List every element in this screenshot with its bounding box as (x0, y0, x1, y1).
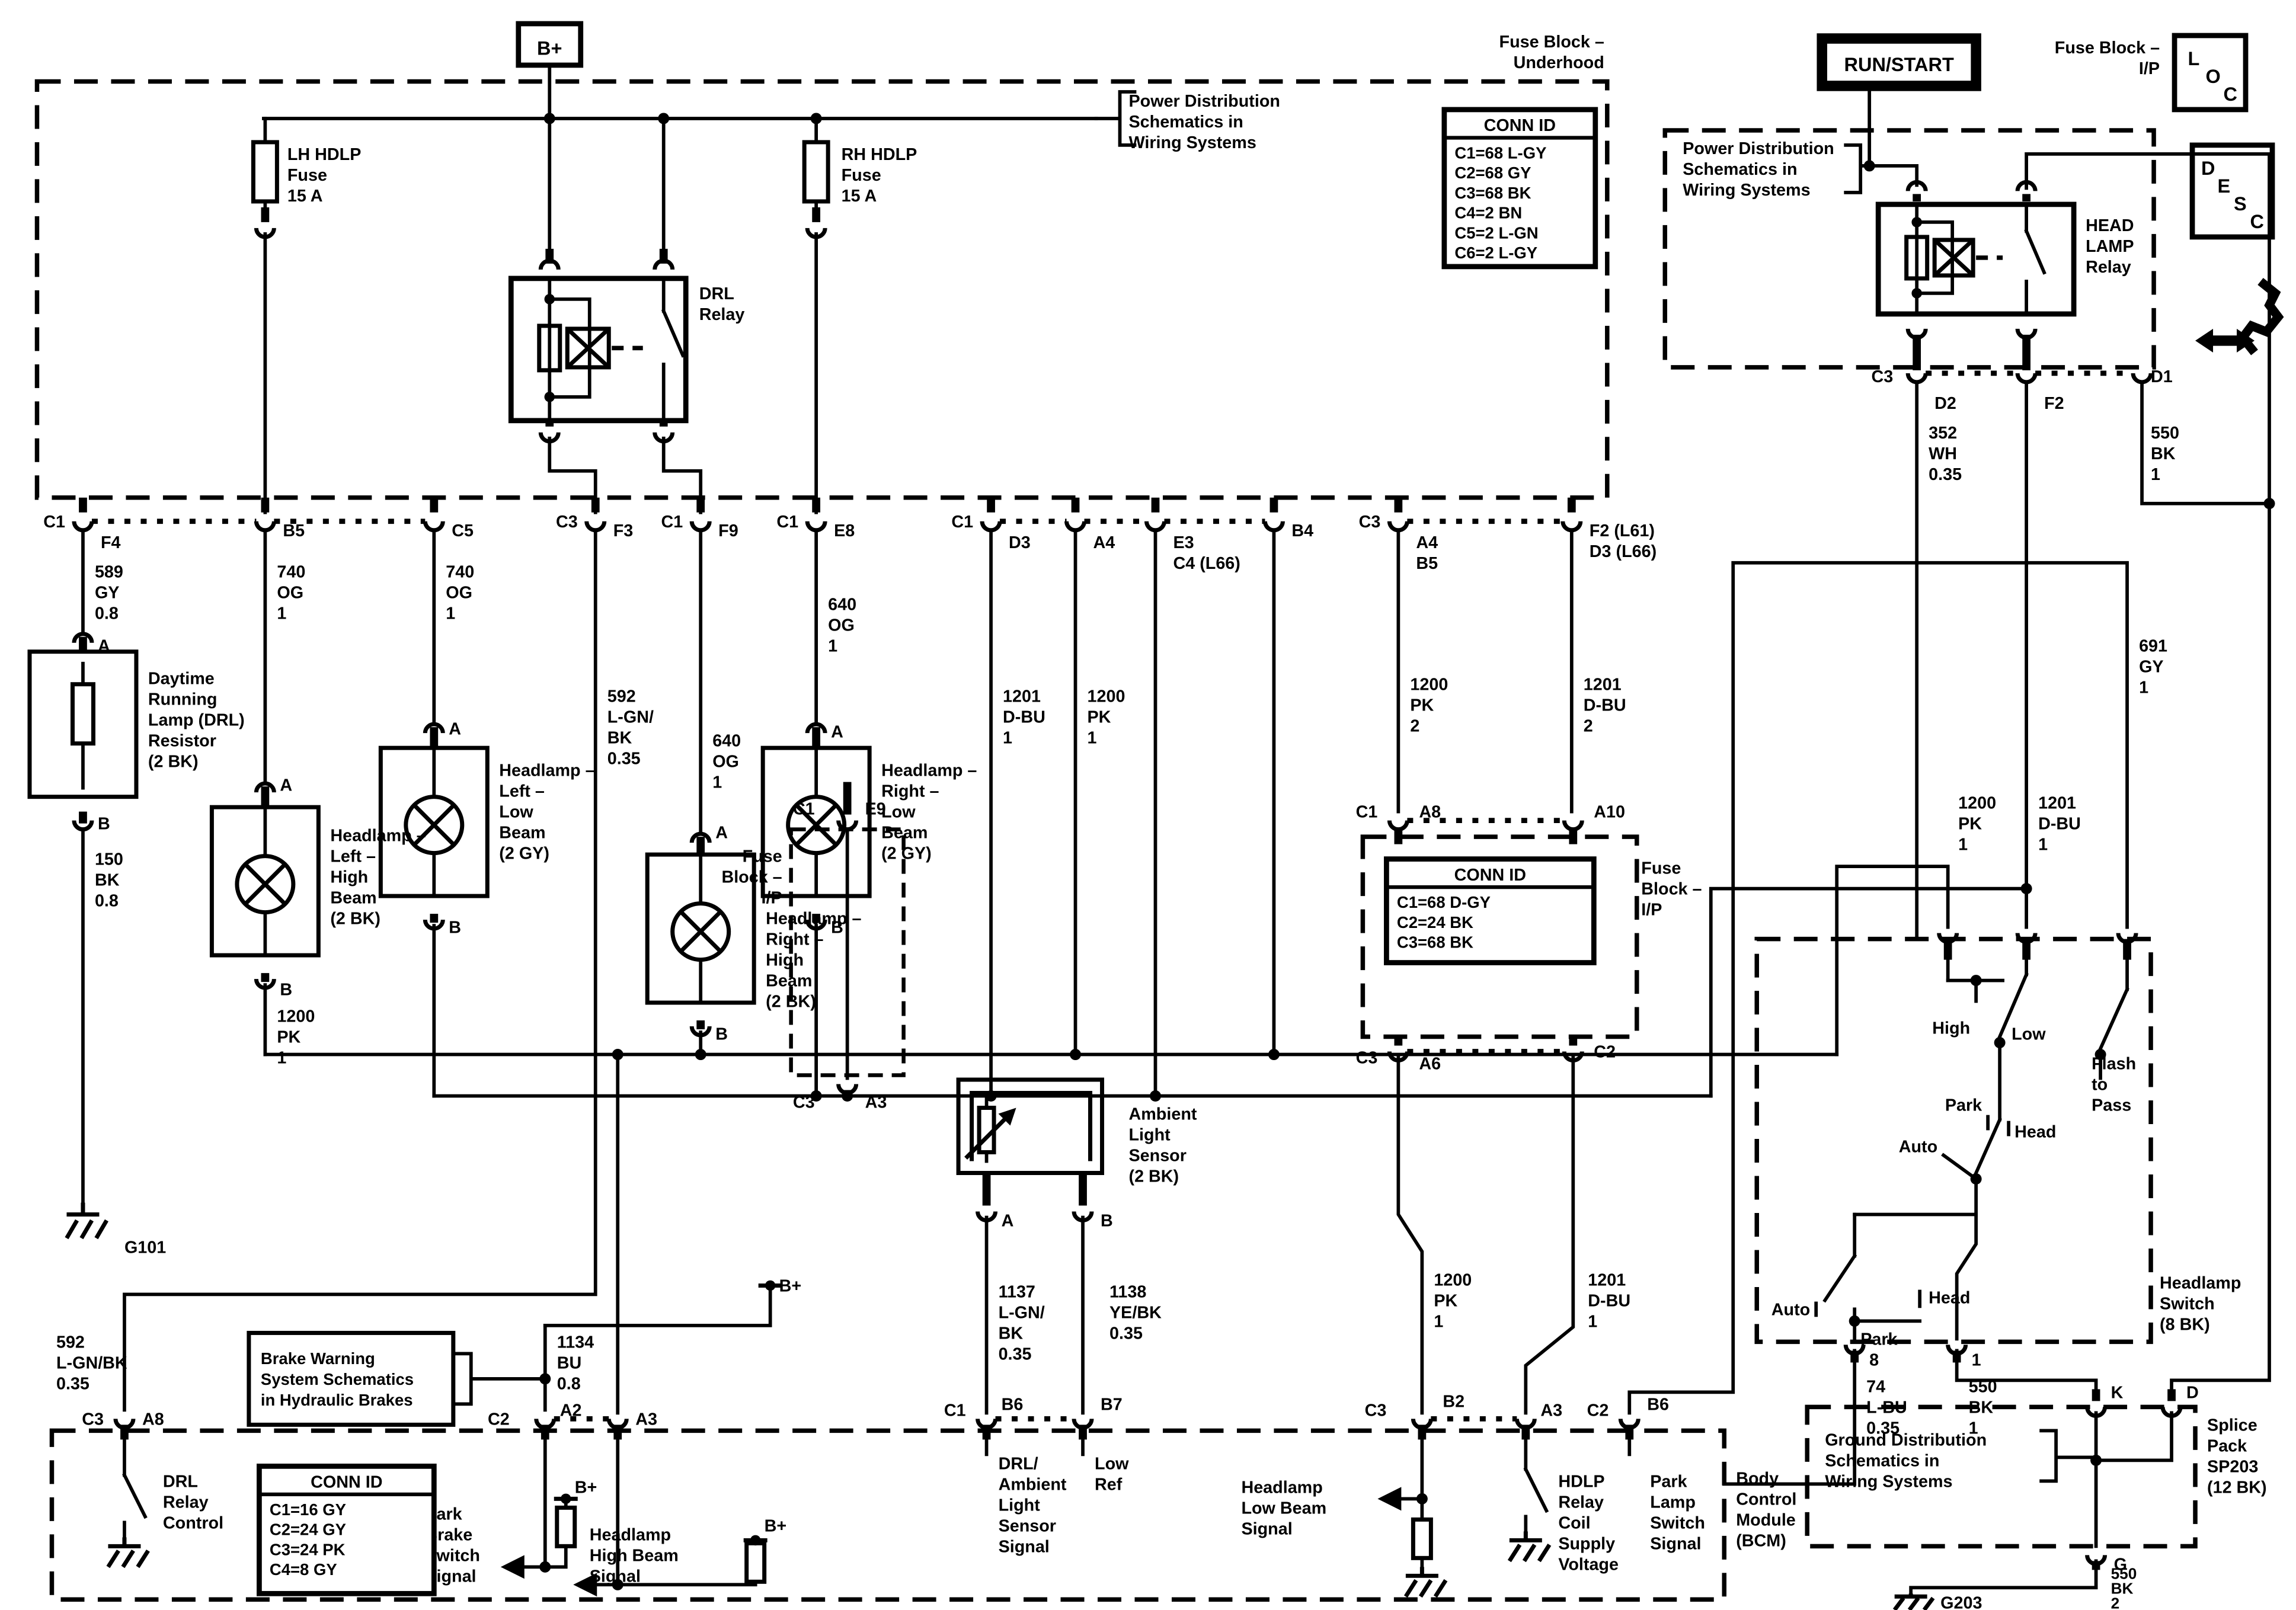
ip-e9: E9 (865, 800, 886, 819)
drl-resistor-label: Lamp (DRL) (148, 711, 245, 730)
wire-592-bottom: 592 (56, 1333, 85, 1352)
wire-1201-dbu-d3: D-BU (1003, 708, 1045, 727)
headlamp-left-low: (2 GY) (499, 844, 549, 863)
wire-740-og-c5: OG (446, 584, 472, 603)
bcm-label: (BCM) (1736, 1531, 1786, 1550)
drl-relay-label: DRL (699, 284, 734, 303)
wire-1201-dbu-bcm: 1201 (1588, 1270, 1626, 1289)
wire-589-gy: 589 (95, 563, 123, 582)
bplus-top-label: B+ (537, 37, 562, 59)
wire-589-gy: 0.8 (95, 604, 119, 623)
wire-592-lgnbk: L-GN/ (607, 708, 654, 727)
hdlp-relay-coil: Relay (1558, 1493, 1604, 1512)
headlamp-high-beam-signal: High Beam (590, 1546, 679, 1565)
splice-pack: (12 BK) (2207, 1478, 2267, 1497)
rh-hdlp-fuse: 15 A (842, 187, 877, 206)
headlamp-left-high: Left – (330, 847, 376, 866)
sw-high: High (1932, 1019, 1970, 1038)
pin-e8: E8 (834, 521, 855, 540)
headlamp-low-beam-signal: Signal (1241, 1519, 1292, 1538)
conn-id-underhood-title: CONN ID (1484, 116, 1556, 135)
splice-pack: SP203 (2207, 1457, 2258, 1476)
sw-flash: Pass (2092, 1096, 2131, 1115)
drl-resistor-symbol (30, 652, 136, 797)
rh-hdlp-fuse: Fuse (842, 166, 881, 185)
wire-1200-pk-2: 2 (1410, 717, 1419, 736)
pin-d1: D1 (2151, 367, 2173, 386)
ground-g203: G203 (1940, 1593, 1982, 1609)
wire-589-gy: GY (95, 584, 120, 603)
wire-1137: 1137 (999, 1282, 1035, 1301)
fuse-block-ip-topright: Fuse Block – (2055, 39, 2160, 57)
bcm-b6: B6 (1002, 1395, 1024, 1414)
wire-1200-pk-lhb: PK (277, 1028, 300, 1047)
loc-icon-letter: C (2224, 84, 2237, 105)
headlamp-right-low: Beam (881, 824, 928, 843)
sw-flash: to (2092, 1076, 2108, 1094)
bcm-c2: C2 (488, 1410, 510, 1429)
head-lamp-relay-symbol (1878, 204, 2074, 314)
sw-park-1: Park (1945, 1096, 1982, 1115)
wire-1138: YE/BK (1109, 1303, 1162, 1322)
hdlp-relay-coil: Supply (1558, 1534, 1615, 1553)
bcm-b2: B2 (1443, 1392, 1464, 1411)
wire-550-bk-sw: BK (1969, 1398, 1994, 1417)
drl-resistor-label: Daytime (148, 670, 215, 689)
drl-relay-control: Control (163, 1513, 223, 1532)
low-ref: Low (1095, 1454, 1129, 1473)
pin-d: D (2186, 1383, 2199, 1402)
hdlp-relay-coil: Voltage (1558, 1555, 1619, 1574)
headlamp-left-low: Left – (499, 782, 545, 801)
park-lamp-signal: Switch (1650, 1513, 1705, 1532)
headlamp-right-low: Low (881, 803, 916, 822)
wire-352-wh: 0.35 (1929, 465, 1962, 484)
low-beam-arrow (1377, 1487, 1401, 1510)
wire-1134-bu: 1134 (557, 1333, 594, 1352)
rlb-pin-b: B (831, 918, 843, 937)
park-brake-pullup-resistor (557, 1507, 575, 1546)
wire-1201-dbu-switch: 1201 (2038, 794, 2076, 813)
pin-d3: D3 (1009, 533, 1031, 552)
sw-head-1: Head (2014, 1123, 2056, 1142)
wire-740-og-b5: OG (277, 584, 303, 603)
wire-150-bk: 0.8 (95, 892, 119, 911)
desc-icon-letter: D (2201, 158, 2215, 179)
headlamp-left-high: High (330, 868, 368, 887)
hdlp-relay-coil: HDLP (1558, 1472, 1604, 1491)
wiring-diagram-page: B+ RUN/START LH HDLPFuse15 ARH HDLPFuse1… (0, 0, 2296, 1610)
bcm-c1-b6: C1 (944, 1401, 966, 1420)
head-lamp-relay-label: HEAD (2086, 216, 2134, 235)
conn-c3-relay-row: C3 (1871, 367, 1893, 386)
sw-pin-8: 8 (1869, 1350, 1879, 1369)
bplus-park-brake: B+ (575, 1478, 597, 1497)
bcm-a3-coil: A3 (1540, 1401, 1562, 1420)
conn-c3-f3-c: C3 (556, 513, 578, 532)
headlamp-right-low: (2 GY) (881, 844, 932, 863)
lhb-pin-a: A (280, 776, 292, 795)
conn-id-bcm-row: C3=24 PK (270, 1540, 346, 1558)
power-dist-right: Wiring Systems (1683, 181, 1810, 200)
wire-150-bk: 150 (95, 850, 123, 869)
wire-640-og-e8: OG (828, 616, 855, 635)
ambient-light-sensor: Ambient (1129, 1105, 1197, 1124)
wrench-arrow-icon (2195, 281, 2278, 353)
headlamp-left-low: Low (499, 803, 533, 822)
rhb-pin-a: A (715, 824, 728, 843)
bcm-a8: A8 (142, 1410, 164, 1429)
wire-592-bottom: L-GN/BK (56, 1353, 127, 1372)
headlamp-left-high: Headlamp – (330, 827, 426, 846)
drl-als-signal: Ambient (999, 1475, 1067, 1494)
wire-1201-dbu-switch: 1 (2038, 836, 2048, 854)
fuse-block-underhood-title: Underhood (1514, 53, 1604, 72)
rh-hdlp-fuse: RH HDLP (842, 145, 917, 164)
wire-352-wh: WH (1929, 444, 1957, 463)
wire-1138: 0.35 (1109, 1324, 1143, 1343)
drl-als-signal: Light (999, 1496, 1041, 1515)
pin-f3: F3 (613, 521, 634, 540)
ambient-light-sensor: Sensor (1129, 1146, 1187, 1165)
pin-a4-b5: B5 (1416, 554, 1438, 573)
power-dist-underhood: Wiring Systems (1129, 133, 1256, 152)
conn-c1-e8-c: C1 (776, 513, 798, 532)
mid-c1: C1 (1356, 803, 1378, 822)
wire-1200-pk-switch: 1 (1958, 836, 1968, 854)
wire-1201-dbu-2: 1201 (1584, 676, 1622, 694)
mid-a6: A6 (1419, 1055, 1441, 1074)
als-pin-a: A (1002, 1211, 1014, 1230)
conn-id-bcm-title: CONN ID (311, 1473, 382, 1492)
wire-640-og-e8: 640 (828, 596, 856, 614)
headlamp-left-low: Beam (499, 824, 545, 843)
wire-1201-dbu-switch: D-BU (2038, 815, 2081, 834)
wire-640-og-f9: OG (712, 753, 739, 772)
junction-dots (539, 113, 2275, 1590)
conn-id-bcm-row: C2=24 GY (270, 1521, 346, 1539)
pin-f2-l61: F2 (L61) (1590, 521, 1655, 540)
wire-1200-pk-a4: 1200 (1088, 687, 1125, 706)
fuse-block-ip-small: Fuse (743, 847, 782, 866)
conn-c1-d3-c: C1 (951, 513, 973, 532)
wire-1200-pk-switch: 1200 (1958, 794, 1996, 813)
conn-id-ip-row: C1=68 D-GY (1397, 893, 1491, 911)
headlamp-switch-label: Switch (2160, 1294, 2215, 1313)
wire-1200-pk-a4: PK (1088, 708, 1111, 727)
power-dist-right: Schematics in (1683, 160, 1797, 179)
brake-warning-text: in Hydraulic Brakes (261, 1391, 413, 1409)
wire-640-og-f9: 1 (712, 773, 722, 792)
wire-550-bk-right: BK (2151, 444, 2176, 463)
als-pin-b: B (1101, 1211, 1113, 1230)
pin-a4-b5: A4 (1416, 533, 1438, 552)
bcm-c2-b6: C2 (1587, 1401, 1609, 1420)
conn-id-underhood-row: C6=2 L-GY (1454, 244, 1537, 262)
headlamp-left-high-symbol (212, 807, 318, 955)
wire-592-lgnbk: BK (607, 729, 632, 748)
conn-id-bcm-row: C4=8 GY (270, 1560, 337, 1579)
ambient-light-sensor-symbol (958, 1080, 1102, 1173)
wire-1200-pk-bcm: PK (1434, 1291, 1457, 1310)
bcm-label: Body (1736, 1469, 1779, 1488)
drl-relay-label: Relay (699, 305, 745, 324)
wire-74-lbu: L-BU (1866, 1398, 1907, 1417)
high-beam-pullup-resistor (747, 1543, 765, 1582)
lh-hdlp-fuse-symbol (253, 142, 277, 201)
headlamp-right-high: Right – (766, 930, 823, 949)
lh-hdlp-fuse: LH HDLP (287, 145, 362, 164)
conn-id-bcm-row: C1=16 GY (270, 1500, 346, 1519)
wire-1137: BK (999, 1324, 1024, 1343)
wire-1200-pk-bcm: 1200 (1434, 1270, 1472, 1289)
park-lamp-signal: Signal (1650, 1534, 1701, 1553)
pin-f2-l61: D3 (L66) (1590, 542, 1657, 561)
conn-id-ip-row: C3=68 BK (1397, 933, 1473, 952)
drl-relay-control: Relay (163, 1493, 209, 1512)
wire-1200-pk-2: PK (1410, 696, 1434, 715)
drl-resistor-label: Resistor (148, 732, 216, 751)
brake-warning-text: System Schematics (261, 1370, 414, 1388)
headlamp-right-high: High (766, 951, 804, 970)
low-beam-resistor (1413, 1519, 1431, 1558)
wire-1134-bu: 0.8 (557, 1374, 581, 1393)
wire-740-og-c5: 740 (446, 563, 474, 582)
wire-1134-bu: BU (557, 1353, 582, 1372)
llb-pin-b: B (449, 918, 461, 937)
pin-d2: D2 (1934, 394, 1956, 413)
low-ref: Ref (1095, 1475, 1123, 1494)
pin-k: K (2111, 1383, 2124, 1402)
pin-e3-c4: E3 (1173, 533, 1194, 552)
wire-1200-pk-2: 1200 (1410, 676, 1448, 694)
desc-icon-letter: C (2250, 211, 2264, 232)
wire-1138: 1138 (1109, 1282, 1146, 1301)
fuse-block-ip-mid: I/P (1641, 901, 1662, 920)
bplus-1134: B+ (779, 1276, 802, 1295)
drl-relay-symbol (511, 279, 686, 421)
wire-74-lbu: 74 (1866, 1377, 1885, 1396)
wire-592-lgnbk: 0.35 (607, 750, 641, 769)
conn-id-ip-title: CONN ID (1454, 866, 1526, 885)
headlamp-right-low: Right – (881, 782, 939, 801)
headlamp-left-low-symbol (380, 748, 487, 896)
conn-id-underhood-row: C4=2 BN (1454, 204, 1522, 222)
bcm-c3-a8: C3 (82, 1410, 104, 1429)
wire-352-wh: 352 (1929, 424, 1957, 443)
conn-c1-f9-c: C1 (661, 513, 683, 532)
wire-640-og-f9: 640 (712, 732, 741, 751)
park-lamp-signal: Park (1650, 1472, 1687, 1491)
headlamp-switch-box (1757, 939, 2151, 1342)
wire-550-bk-2: 2 (2111, 1594, 2120, 1609)
conn-id-underhood-row: C3=68 BK (1454, 184, 1531, 202)
wire-150-bk: BK (95, 871, 120, 890)
headlamp-right-high: Headlamp – (766, 910, 861, 929)
icon-letters: LOCDESC (2188, 48, 2264, 232)
power-dist-underhood: Schematics in (1129, 113, 1243, 132)
sw-low: Low (2012, 1025, 2046, 1044)
wire-1137: L-GN/ (999, 1303, 1045, 1322)
headlamp-low-beam-signal: Low Beam (1241, 1499, 1326, 1518)
ip-a3: A3 (865, 1093, 887, 1112)
ip-c1: C1 (793, 800, 815, 819)
wire-1201-dbu-d3: 1201 (1003, 687, 1041, 706)
conn-c3-mid-c: C3 (1359, 513, 1381, 532)
bcm-c3-b2: C3 (1365, 1401, 1387, 1420)
drl-res-pin-b: B (98, 815, 110, 834)
pin-c5: C5 (452, 521, 474, 540)
mid-c3: C3 (1356, 1049, 1378, 1068)
pin-f2: F2 (2044, 394, 2064, 413)
bcm-label: Module (1736, 1510, 1796, 1529)
wire-1200-pk-bcm: 1 (1434, 1312, 1443, 1331)
ground-dist: Schematics in (1825, 1451, 1939, 1470)
fuse-block-ip-small: Block – (721, 868, 782, 887)
wire-1201-dbu-bcm: 1 (1588, 1312, 1597, 1331)
conn-id-ip-row: C2=24 BK (1397, 913, 1473, 932)
wire-691-gy: 691 (2139, 637, 2167, 656)
fuse-block-underhood-title: Fuse Block – (1499, 33, 1604, 52)
fuse-block-ip-mid: Fuse (1641, 859, 1681, 878)
drl-als-signal: Sensor (999, 1516, 1056, 1535)
sw-auto-1: Auto (1899, 1137, 1937, 1156)
pin-b4: B4 (1291, 521, 1313, 540)
drl-als-signal: DRL/ (999, 1454, 1038, 1473)
brake-warning-text: Brake Warning (261, 1349, 375, 1368)
drl-resistor-label: Running (148, 690, 217, 709)
pin-a4: A4 (1093, 533, 1115, 552)
llb-pin-a: A (449, 720, 461, 739)
terminal-stubs (83, 194, 2172, 1570)
bcm-label: Control (1736, 1490, 1796, 1509)
lhb-pin-b: B (280, 981, 292, 1000)
headlamp-left-high: (2 BK) (330, 910, 380, 929)
lh-hdlp-fuse: Fuse (287, 166, 327, 185)
wire-1201-dbu-2: 2 (1584, 717, 1593, 736)
ground-dist: Wiring Systems (1825, 1472, 1952, 1491)
ground-g101: G101 (124, 1238, 166, 1257)
pin-b5: B5 (283, 521, 305, 540)
drl-resistor-label: (2 BK) (148, 753, 199, 772)
ip-c3: C3 (793, 1093, 815, 1112)
wire-740-og-b5: 740 (277, 563, 305, 582)
lh-hdlp-fuse: 15 A (287, 187, 323, 206)
conn-id-underhood-row: C2=68 GY (1454, 164, 1531, 182)
bcm-a3-high: A3 (635, 1410, 657, 1429)
sw-pin-1: 1 (1972, 1350, 1981, 1369)
wire-592-lgnbk: 592 (607, 687, 636, 706)
ambient-light-sensor: Light (1129, 1126, 1171, 1145)
bplus-high-beam: B+ (765, 1516, 787, 1535)
wire-740-og-b5: 1 (277, 604, 286, 623)
fuse-block-ip-small: I/P (762, 889, 782, 908)
rhb-pin-b: B (715, 1025, 728, 1044)
drl-relay-control: DRL (163, 1472, 198, 1491)
headlamp-right-high: Beam (766, 972, 812, 991)
wire-691-gy: 1 (2139, 678, 2148, 697)
run-start-label: RUN/START (1844, 54, 1954, 75)
fuse-block-ip-mid: Block – (1641, 880, 1702, 899)
wire-550-bk-right: 550 (2151, 424, 2179, 443)
mid-c2: C2 (1594, 1043, 1616, 1062)
drl-res-pin-a: A (98, 637, 110, 656)
sw-flash: Flash (2092, 1055, 2136, 1074)
park-lamp-signal: Lamp (1650, 1493, 1696, 1512)
splice-pack: Splice (2207, 1416, 2257, 1435)
headlamp-high-beam-signal: Signal (590, 1567, 641, 1586)
headlamp-high-beam-signal: Headlamp (590, 1525, 671, 1544)
head-lamp-relay-label: LAMP (2086, 237, 2134, 256)
wire-1200-pk-lhb: 1 (277, 1049, 286, 1068)
bcm-b7: B7 (1101, 1395, 1123, 1414)
headlamp-low-beam-signal: Headlamp (1241, 1478, 1322, 1497)
mid-a8: A8 (1419, 803, 1441, 822)
pin-e3-c4: C4 (L66) (1173, 554, 1240, 573)
head-lamp-relay-label: Relay (2086, 258, 2131, 277)
conn-id-underhood-row: C5=2 L-GN (1454, 223, 1538, 242)
wire-640-og-e8: 1 (828, 637, 837, 656)
drl-als-signal: Signal (999, 1537, 1050, 1556)
sw-head-2: Head (1929, 1288, 1970, 1307)
hdlp-relay-coil: Coil (1558, 1513, 1590, 1532)
conn-id-underhood-row: C1=68 L-GY (1454, 143, 1546, 162)
ambient-light-sensor: (2 BK) (1129, 1167, 1179, 1186)
wire-1200-pk-a4: 1 (1088, 729, 1097, 748)
headlamp-switch-label: Headlamp (2160, 1273, 2241, 1292)
power-dist-right: Power Distribution (1683, 139, 1834, 158)
bcm-a2: A2 (560, 1401, 582, 1420)
wire-691-gy: GY (2139, 658, 2164, 677)
fuse-block-ip-topright: I/P (2139, 59, 2160, 78)
wire-1200-pk-switch: PK (1958, 815, 1982, 834)
wire-1137: 0.35 (999, 1345, 1032, 1363)
wire-1200-pk-lhb: 1200 (277, 1007, 315, 1026)
sw-auto-2: Auto (1771, 1300, 1810, 1319)
wire-592-bottom: 0.35 (56, 1374, 89, 1393)
desc-icon-letter: S (2234, 193, 2247, 215)
power-dist-underhood: Power Distribution (1129, 92, 1280, 111)
wire-550-bk-sw: 550 (1969, 1377, 1997, 1396)
headlamp-switch-label: (8 BK) (2160, 1315, 2210, 1334)
headlamp-right-high: (2 BK) (766, 993, 816, 1012)
headlamp-left-low: Headlamp – (499, 761, 594, 780)
wire-1201-dbu-d3: 1 (1003, 729, 1012, 748)
headlamp-left-high: Beam (330, 889, 376, 908)
ground-dist: Ground Distribution (1825, 1430, 1987, 1449)
wire-740-og-c5: 1 (446, 604, 455, 623)
splice-pack: Pack (2207, 1436, 2247, 1455)
loc-icon-letter: O (2206, 66, 2221, 87)
loc-icon-letter: L (2188, 48, 2200, 69)
rh-hdlp-fuse-symbol (804, 142, 828, 201)
wire-1201-dbu-2: D-BU (1584, 696, 1626, 715)
rlb-pin-a: A (831, 723, 843, 742)
wiring-diagram-canvas: B+ RUN/START LH HDLPFuse15 ARH HDLPFuse1… (0, 0, 2296, 1610)
conn-c1-f4-c: C1 (43, 513, 65, 532)
wire-550-bk-right: 1 (2151, 465, 2160, 484)
mid-a10: A10 (1594, 803, 1625, 822)
pin-f9: F9 (718, 521, 738, 540)
headlamp-right-low: Headlamp – (881, 761, 977, 780)
wire-1201-dbu-bcm: D-BU (1588, 1291, 1630, 1310)
desc-icon-letter: E (2218, 175, 2231, 197)
connector-pins (74, 182, 2180, 1564)
park-brake-arrow (501, 1555, 525, 1579)
bcm-b6-park: B6 (1647, 1395, 1669, 1414)
pin-f4: F4 (101, 533, 121, 552)
sw-park-2: Park (1860, 1330, 1898, 1349)
